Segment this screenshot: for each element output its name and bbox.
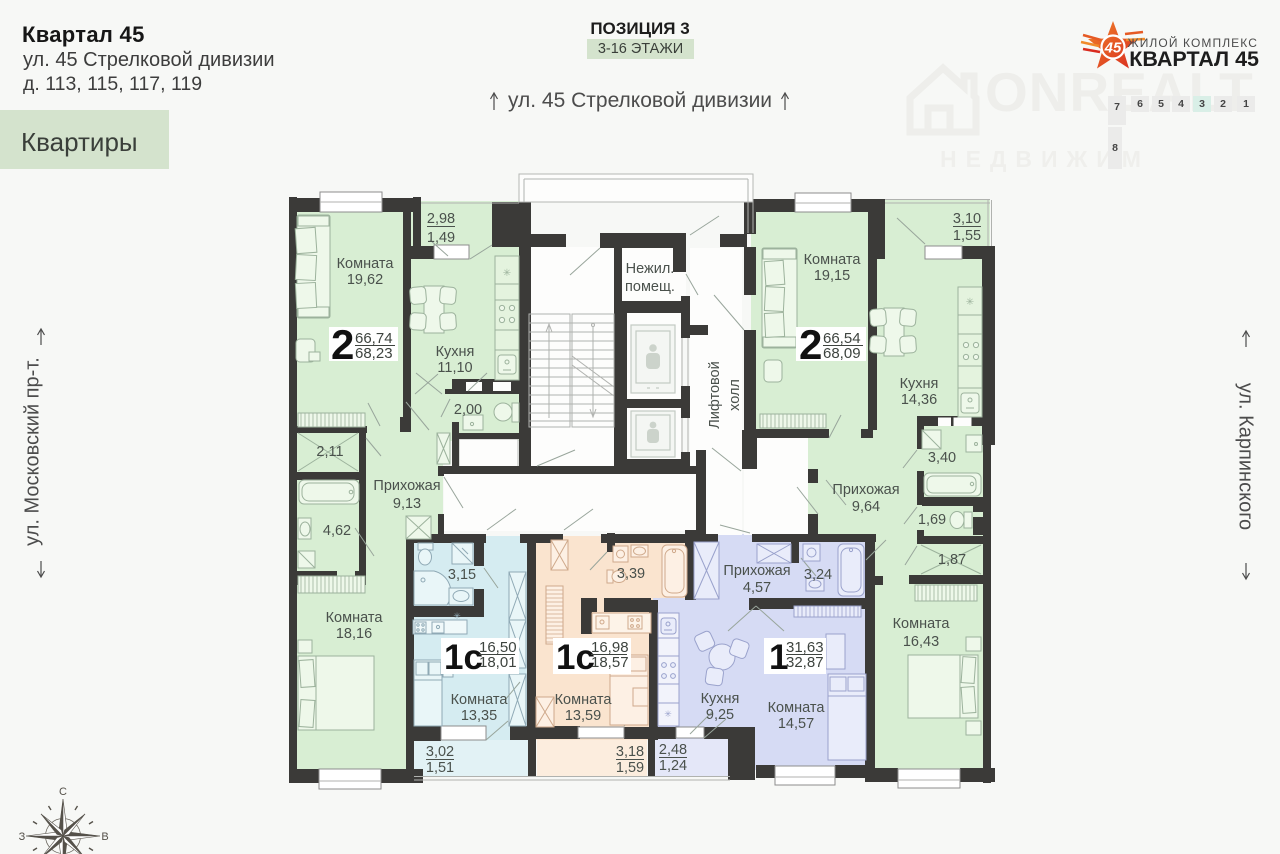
svg-text:4,62: 4,62: [323, 523, 351, 539]
svg-text:Комната: Комната: [326, 610, 384, 626]
svg-text:2: 2: [331, 321, 354, 368]
svg-text:13,35: 13,35: [461, 708, 497, 724]
svg-text:18,16: 18,16: [336, 626, 372, 642]
svg-text:2: 2: [799, 321, 822, 368]
svg-text:Кухня: Кухня: [436, 344, 475, 360]
svg-text:18,57: 18,57: [591, 654, 629, 671]
svg-text:Комната: Комната: [893, 616, 951, 632]
svg-text:1,55: 1,55: [953, 228, 981, 244]
svg-text:4,57: 4,57: [743, 580, 771, 596]
svg-text:Комната: Комната: [451, 692, 509, 708]
svg-text:9,25: 9,25: [706, 707, 734, 723]
svg-text:1с: 1с: [556, 638, 595, 677]
svg-text:68,09: 68,09: [823, 345, 861, 362]
svg-text:Комната: Комната: [337, 256, 395, 272]
svg-text:Прихожая: Прихожая: [832, 482, 899, 498]
svg-text:19,15: 19,15: [814, 268, 850, 284]
svg-text:14,57: 14,57: [778, 716, 814, 732]
svg-text:Комната: Комната: [768, 700, 826, 716]
svg-text:✳: ✳: [453, 611, 461, 621]
svg-text:2,00: 2,00: [454, 402, 482, 418]
svg-text:1,49: 1,49: [427, 230, 455, 246]
svg-text:ул. 45 Стрелковой дивизии: ул. 45 Стрелковой дивизии: [508, 89, 772, 112]
svg-text:Комната: Комната: [555, 692, 613, 708]
svg-text:3,39: 3,39: [617, 566, 645, 582]
svg-text:Нежил.: Нежил.: [626, 261, 675, 277]
svg-text:1,69: 1,69: [918, 512, 946, 528]
svg-text:В: В: [101, 831, 108, 843]
svg-text:3,15: 3,15: [448, 567, 476, 583]
svg-text:С: С: [59, 786, 67, 798]
svg-text:11,10: 11,10: [437, 360, 472, 376]
svg-text:2,98: 2,98: [427, 211, 455, 227]
svg-text:68,23: 68,23: [355, 345, 393, 362]
svg-text:13,59: 13,59: [565, 708, 601, 724]
svg-text:Прихожая: Прихожая: [373, 478, 440, 494]
svg-text:18,01: 18,01: [479, 654, 517, 671]
svg-text:холл: холл: [727, 379, 743, 411]
svg-text:3,10: 3,10: [953, 211, 981, 227]
svg-text:Прихожая: Прихожая: [723, 563, 790, 579]
svg-text:✳: ✳: [503, 268, 511, 279]
svg-text:19,62: 19,62: [347, 272, 383, 288]
svg-text:9,64: 9,64: [852, 499, 880, 515]
svg-text:помещ.: помещ.: [625, 279, 675, 295]
svg-text:1,59: 1,59: [616, 760, 644, 776]
svg-text:1,24: 1,24: [659, 758, 687, 774]
svg-text:16,43: 16,43: [903, 634, 939, 650]
svg-text:2,11: 2,11: [316, 444, 343, 460]
svg-text:3,18: 3,18: [616, 744, 644, 760]
svg-text:3,24: 3,24: [804, 567, 832, 583]
svg-text:1с: 1с: [444, 638, 483, 677]
svg-text:Кухня: Кухня: [701, 691, 740, 707]
svg-text:2,48: 2,48: [659, 742, 687, 758]
svg-text:Комната: Комната: [804, 252, 862, 268]
svg-text:3,02: 3,02: [426, 744, 454, 760]
svg-text:1,51: 1,51: [426, 760, 454, 776]
svg-text:3,40: 3,40: [928, 450, 956, 466]
svg-text:Лифтовой: Лифтовой: [707, 361, 723, 428]
svg-text:Кухня: Кухня: [900, 376, 939, 392]
svg-text:1,87: 1,87: [938, 552, 966, 568]
svg-text:✳: ✳: [966, 297, 974, 308]
svg-text:14,36: 14,36: [901, 392, 937, 408]
svg-text:9,13: 9,13: [393, 496, 421, 512]
svg-text:32,87: 32,87: [786, 654, 824, 671]
svg-text:✳: ✳: [664, 709, 672, 719]
svg-text:З: З: [19, 831, 26, 843]
